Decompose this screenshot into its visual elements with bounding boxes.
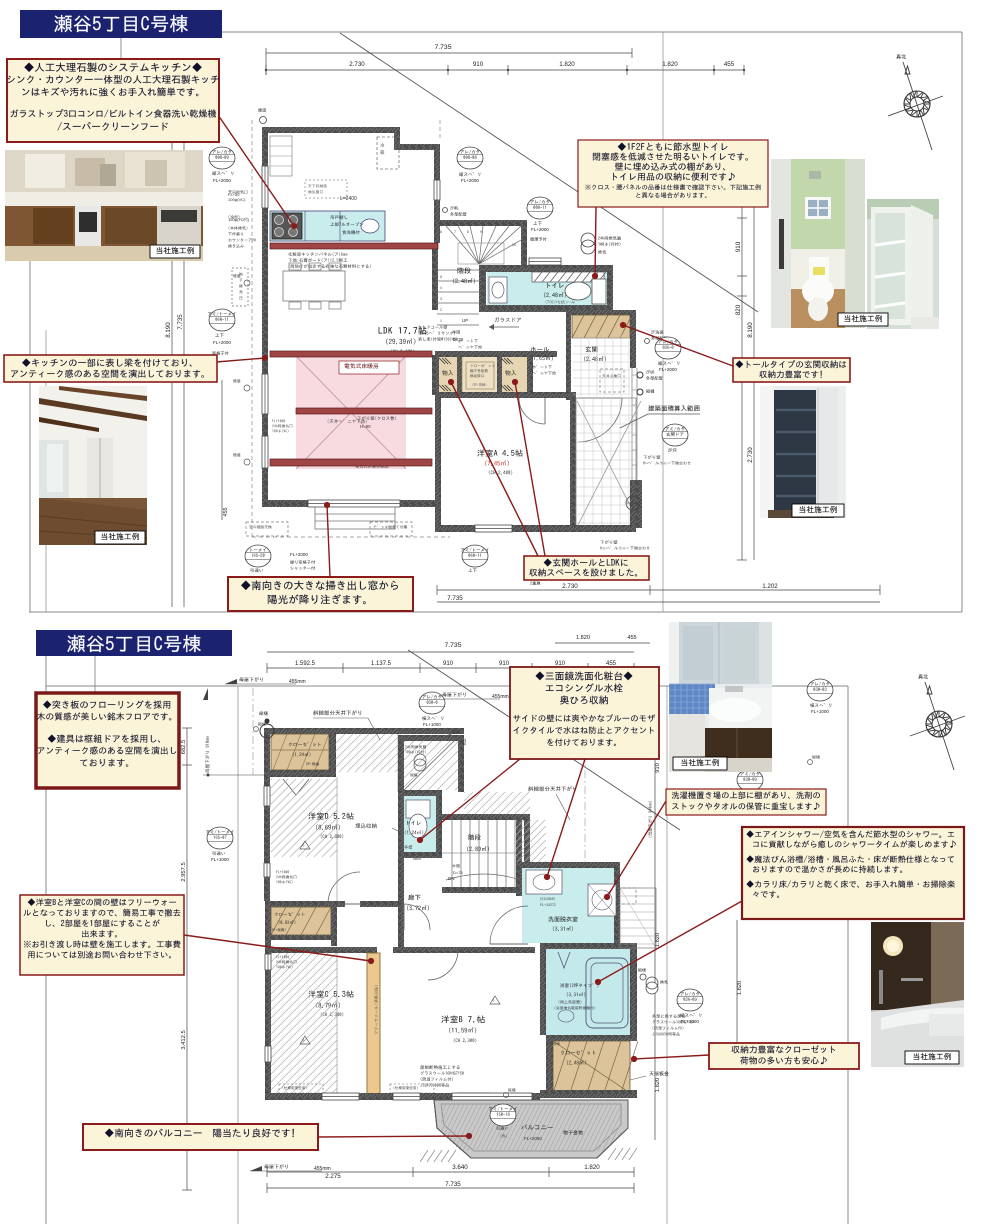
svg-text:1.820: 1.820 bbox=[576, 635, 590, 641]
svg-text:7.735: 7.735 bbox=[434, 44, 451, 51]
svg-text:1.137.5: 1.137.5 bbox=[371, 661, 392, 667]
svg-text:1.820: 1.820 bbox=[737, 981, 743, 996]
svg-text:8.190: 8.190 bbox=[747, 322, 754, 338]
svg-text:2.730: 2.730 bbox=[349, 61, 365, 68]
svg-text:9: 9 bbox=[480, 230, 482, 234]
svg-text:7.735: 7.735 bbox=[447, 595, 463, 602]
svg-text:FL+10272: FL+10272 bbox=[540, 903, 556, 907]
svg-text:FL+2050: FL+2050 bbox=[524, 1136, 542, 1141]
svg-text:1.820: 1.820 bbox=[655, 1078, 661, 1093]
svg-text:7.735: 7.735 bbox=[177, 314, 184, 330]
svg-text:FL+2000: FL+2000 bbox=[659, 367, 677, 372]
svg-text:2: 2 bbox=[440, 308, 442, 312]
svg-text:FL+1000: FL+1000 bbox=[423, 722, 441, 727]
svg-text:ｾﾗ10284ｻ: ｾﾗ10284ｻ bbox=[540, 896, 555, 901]
svg-text:910: 910 bbox=[555, 661, 566, 667]
svg-text:10: 10 bbox=[512, 243, 516, 247]
svg-text:D=75: D=75 bbox=[453, 870, 463, 875]
svg-text:455: 455 bbox=[724, 61, 735, 68]
svg-text:6: 6 bbox=[440, 230, 442, 234]
svg-text:455: 455 bbox=[606, 661, 617, 667]
svg-text:UP: UP bbox=[462, 318, 468, 323]
svg-text:1.592.5: 1.592.5 bbox=[295, 661, 316, 667]
svg-text:1.820: 1.820 bbox=[584, 1164, 600, 1171]
svg-text:910: 910 bbox=[473, 61, 484, 68]
svg-text:910: 910 bbox=[462, 738, 467, 746]
svg-text:7.735: 7.735 bbox=[444, 642, 461, 649]
svg-text:2.730: 2.730 bbox=[562, 583, 578, 590]
svg-text:910: 910 bbox=[735, 241, 742, 252]
svg-text:455mm: 455mm bbox=[314, 1166, 331, 1172]
svg-text:3: 3 bbox=[440, 297, 442, 301]
svg-text:910: 910 bbox=[499, 661, 510, 667]
svg-text:455: 455 bbox=[223, 507, 229, 516]
svg-text:FL+2000: FL+2000 bbox=[213, 340, 231, 345]
svg-text:910: 910 bbox=[655, 763, 661, 773]
svg-text:7.735: 7.735 bbox=[445, 1181, 461, 1188]
svg-text:820: 820 bbox=[735, 304, 742, 315]
svg-text:8: 8 bbox=[467, 230, 469, 234]
svg-text:L=2400: L=2400 bbox=[340, 196, 357, 202]
svg-text:FL+1000: FL+1000 bbox=[211, 857, 229, 862]
svg-text:455: 455 bbox=[627, 635, 636, 641]
svg-text:DN: DN bbox=[448, 876, 455, 881]
svg-text:1: 1 bbox=[440, 319, 442, 323]
svg-text:3.412.5: 3.412.5 bbox=[181, 1030, 187, 1049]
svg-text:8.190: 8.190 bbox=[165, 322, 172, 338]
svg-text:455mm: 455mm bbox=[289, 679, 306, 685]
svg-text:H=90: H=90 bbox=[360, 424, 371, 429]
svg-text:1.202: 1.202 bbox=[762, 583, 778, 590]
svg-text:1.820: 1.820 bbox=[559, 61, 575, 68]
svg-text:D=75: D=75 bbox=[453, 337, 464, 342]
svg-text:5: 5 bbox=[440, 275, 442, 279]
svg-text:2.730: 2.730 bbox=[747, 447, 754, 463]
svg-text:2.275: 2.275 bbox=[325, 1173, 341, 1180]
svg-text:682.5: 682.5 bbox=[181, 740, 187, 755]
svg-text:7: 7 bbox=[454, 230, 456, 234]
svg-text:FL+2000: FL+2000 bbox=[213, 178, 231, 183]
svg-text:FL+2000: FL+2000 bbox=[290, 552, 308, 557]
svg-text:3.640: 3.640 bbox=[452, 1164, 468, 1171]
svg-text:100φ(VC): 100φ(VC) bbox=[228, 197, 246, 202]
svg-text:910: 910 bbox=[443, 661, 454, 667]
svg-text:FL+2000: FL+2000 bbox=[531, 227, 549, 232]
svg-text:455mm: 455mm bbox=[492, 694, 509, 700]
svg-text:1.820: 1.820 bbox=[662, 61, 678, 68]
svg-text:FL+1000: FL+1000 bbox=[811, 709, 829, 714]
svg-text:4: 4 bbox=[440, 286, 442, 290]
svg-text:150φ(FD付): 150φ(FD付) bbox=[228, 216, 250, 222]
svg-text:2.957.5: 2.957.5 bbox=[181, 862, 187, 881]
svg-text:FL+1000: FL+1000 bbox=[681, 1019, 699, 1024]
svg-text:FL+2000: FL+2000 bbox=[461, 178, 479, 183]
